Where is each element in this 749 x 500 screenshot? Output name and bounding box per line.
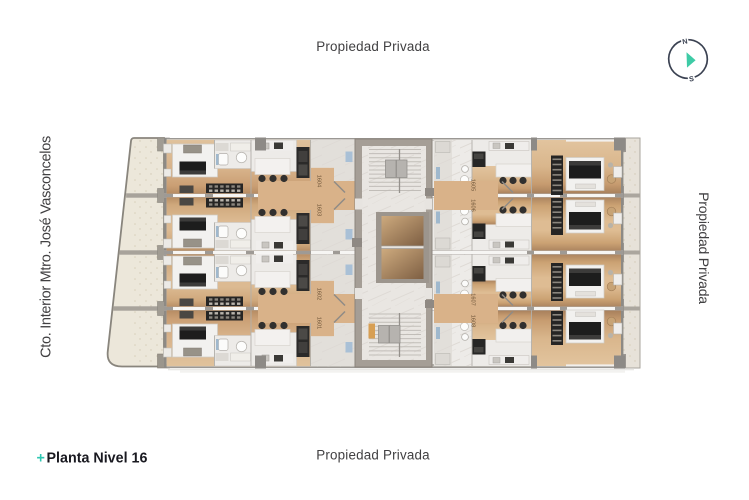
svg-text:1605: 1605 <box>470 179 476 191</box>
svg-text:1606: 1606 <box>470 199 476 211</box>
svg-text:Cto. Interior Mtro. José Vasco: Cto. Interior Mtro. José Vasconcelos <box>39 136 55 358</box>
svg-text:1607: 1607 <box>470 293 476 305</box>
svg-text:1608: 1608 <box>470 315 476 327</box>
svg-text:Propiedad Privada: Propiedad Privada <box>316 39 430 54</box>
svg-text:1604: 1604 <box>316 175 322 187</box>
svg-text:Planta Nivel 16: Planta Nivel 16 <box>47 451 148 467</box>
svg-text:Propiedad Privada: Propiedad Privada <box>316 448 430 463</box>
svg-text:+: + <box>37 451 45 467</box>
svg-text:1601: 1601 <box>316 317 322 329</box>
svg-text:1602: 1602 <box>316 288 322 300</box>
svg-text:1603: 1603 <box>316 204 322 216</box>
svg-text:Propiedad Privada: Propiedad Privada <box>696 192 712 304</box>
